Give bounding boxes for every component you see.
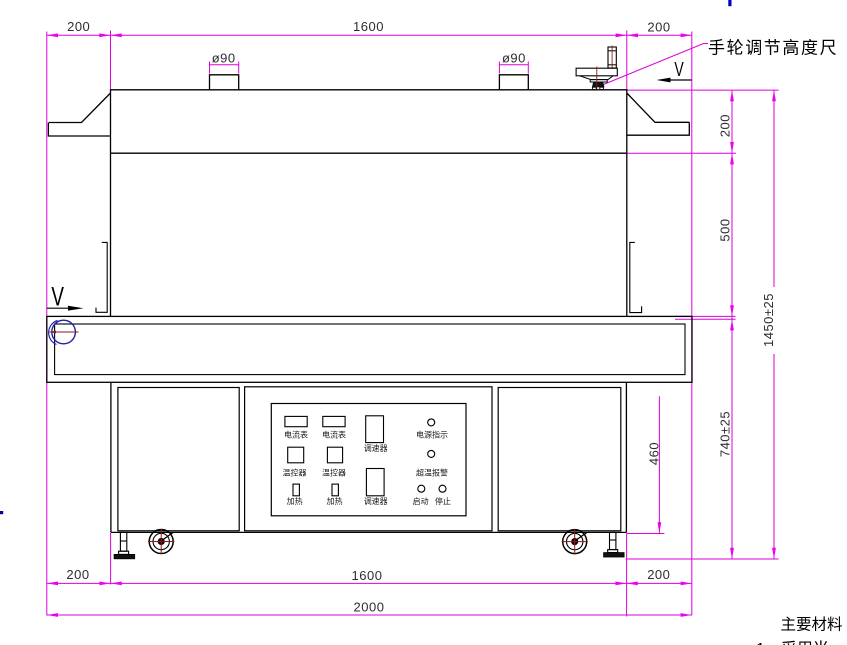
svg-text:超温报警: 超温报警 [416,468,448,478]
svg-text:2000: 2000 [354,600,385,615]
svg-text:1600: 1600 [353,19,384,34]
svg-text:500: 500 [718,218,733,241]
svg-text:200: 200 [67,19,90,34]
svg-text:加热: 加热 [327,496,343,506]
svg-text:740±25: 740±25 [718,411,733,457]
svg-text:200: 200 [647,20,670,35]
svg-text:电流表: 电流表 [284,430,308,440]
svg-text:1450±25: 1450±25 [761,293,776,347]
svg-text:调速器: 调速器 [364,497,388,506]
svg-text:温控器: 温控器 [283,468,307,478]
svg-text:调速器: 调速器 [364,444,388,453]
svg-text:ø90: ø90 [212,50,236,65]
svg-text:电流表: 电流表 [322,430,346,440]
svg-text:启动: 启动 [413,496,429,506]
svg-text:200: 200 [647,567,670,582]
svg-text:主要材料: 主要材料 [781,616,843,634]
svg-text:460: 460 [647,442,662,465]
svg-text:电源指示: 电源指示 [416,430,448,440]
svg-text:200: 200 [718,114,733,137]
svg-text:停止: 停止 [435,496,451,506]
svg-text:1、采用当: 1、采用当 [756,640,829,645]
svg-text:V: V [51,281,64,311]
svg-text:V: V [674,57,684,80]
svg-text:加热: 加热 [287,496,303,506]
svg-text:手轮调节高度尺: 手轮调节高度尺 [708,39,838,58]
svg-text:1600: 1600 [352,568,383,583]
svg-text:200: 200 [66,567,89,582]
svg-text:ø90: ø90 [502,50,526,65]
svg-text:温控器: 温控器 [322,468,346,478]
